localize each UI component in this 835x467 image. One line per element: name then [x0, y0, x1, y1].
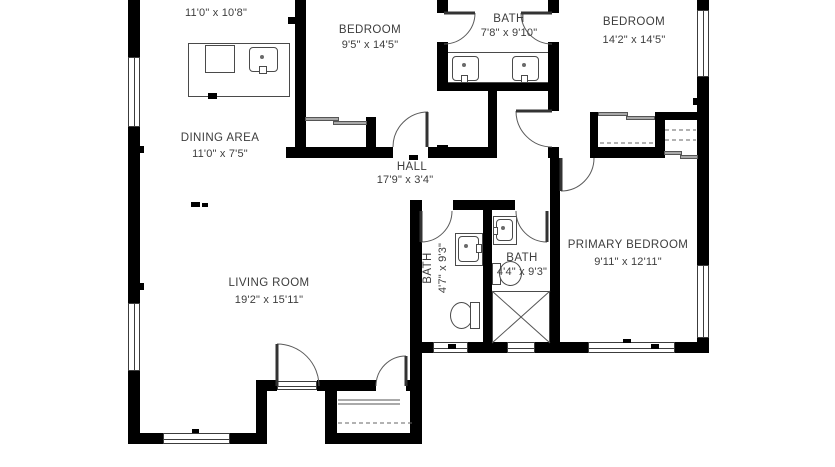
window-pane-line — [589, 348, 674, 349]
window-pane-line — [134, 304, 135, 370]
dimension-tick — [202, 203, 208, 207]
room-dims-bath-a: 4'7" x 9'3" — [437, 243, 449, 293]
window — [697, 265, 709, 338]
room-dims-hall: 17'9" x 3'4" — [377, 174, 434, 186]
door-arc — [516, 211, 547, 242]
window-pane-line — [703, 266, 704, 337]
window — [697, 10, 709, 77]
wall-segment — [548, 42, 559, 111]
wall-segment — [697, 77, 709, 265]
window — [507, 342, 535, 353]
door-arc — [393, 112, 428, 147]
dimension-tick — [623, 339, 631, 343]
vanity-faucet-icon — [521, 75, 528, 83]
wall-segment — [128, 0, 140, 57]
room-dims-bath-top: 7'8" x 9'10" — [481, 27, 538, 39]
sliding-closet-door — [333, 121, 367, 125]
room-label-primary: PRIMARY BEDROOM — [568, 239, 689, 251]
wall-segment — [453, 200, 515, 210]
wall-segment — [325, 433, 422, 444]
island-faucet-icon — [259, 66, 267, 74]
wall-segment — [483, 210, 492, 342]
wall-segment — [256, 388, 267, 444]
window-pane-line — [278, 386, 316, 387]
vanity-faucet-icon — [476, 244, 482, 253]
vanity-faucet-icon — [461, 75, 468, 83]
window — [128, 303, 140, 371]
wall-segment — [410, 200, 422, 391]
door-arc — [444, 13, 475, 44]
window — [163, 433, 230, 444]
wall-segment — [437, 0, 448, 13]
wall-segment — [697, 338, 709, 353]
wall-segment — [128, 127, 140, 303]
dimension-tick — [208, 93, 217, 99]
wall-segment — [288, 17, 296, 24]
room-label-dining: DINING AREA — [181, 132, 260, 144]
room-label-bedroom2: BEDROOM — [603, 16, 665, 28]
room-dims-dining: 11'0" x 7'5" — [192, 148, 248, 160]
wall-segment — [535, 342, 588, 353]
wall-segment — [286, 147, 393, 158]
dimension-tick — [693, 98, 697, 105]
room-dims-living: 19'2" x 15'11" — [235, 294, 303, 306]
wall-segment — [590, 147, 655, 158]
room-label-bedroom1: BEDROOM — [339, 24, 401, 36]
room-label-hall: HALL — [397, 161, 427, 173]
room-dims-primary: 9'11" x 12'11" — [594, 256, 662, 268]
window — [588, 342, 675, 353]
vanity-faucet-icon — [493, 227, 498, 235]
window — [277, 381, 317, 390]
window-pane-line — [164, 439, 229, 440]
dimension-tick — [191, 202, 200, 207]
wall-segment — [548, 147, 559, 158]
island-cooktop-icon — [205, 45, 235, 73]
wall-segment — [548, 0, 559, 13]
toilet-tank-icon — [470, 302, 480, 329]
sliding-closet-door — [626, 116, 655, 120]
room-dims-bedroom1: 9'5" x 14'5" — [342, 39, 399, 51]
dimension-tick — [140, 146, 144, 153]
door-arc — [421, 211, 452, 242]
floor-plan: KITCHEN 11'0" x 10'8" BEDROOM 9'5" x 14'… — [0, 0, 835, 467]
window — [128, 57, 140, 127]
faucet-dot — [462, 63, 466, 67]
door-arc — [561, 158, 594, 191]
window-pane-line — [134, 58, 135, 126]
door-arc — [277, 344, 319, 386]
dimension-tick — [192, 429, 199, 433]
wall-segment — [317, 380, 376, 391]
faucet-dot — [522, 63, 526, 67]
faucet-dot — [260, 55, 264, 59]
door-arc — [516, 111, 552, 147]
room-dims-kitchen: 11'0" x 10'8" — [185, 7, 247, 19]
room-label-living: LIVING ROOM — [228, 277, 309, 289]
dimension-tick — [448, 344, 456, 349]
wall-segment — [468, 342, 507, 353]
room-dims-bedroom2: 14'2" x 14'5" — [603, 34, 666, 46]
wall-segment — [428, 147, 497, 158]
room-label-bath-b: BATH — [506, 252, 537, 264]
window-pane-line — [508, 348, 534, 349]
wall-segment — [697, 0, 709, 10]
wall-segment — [256, 380, 277, 391]
wall-segment — [550, 158, 560, 352]
room-label-bath-a: BATH — [422, 252, 434, 283]
room-dims-bath-b: 4'4" x 9'3" — [497, 266, 547, 278]
faucet-dot — [501, 226, 505, 230]
dimension-tick — [492, 84, 501, 90]
wall-segment — [128, 433, 163, 444]
dimension-tick — [140, 283, 144, 290]
window-pane-line — [703, 11, 704, 76]
dimension-tick — [651, 344, 659, 349]
sliding-closet-door — [598, 112, 628, 116]
wall-segment — [295, 0, 306, 158]
wall-segment — [230, 433, 258, 444]
sliding-closet-door — [680, 155, 698, 159]
door-arc — [376, 356, 406, 386]
wall-segment — [590, 112, 598, 147]
wall-segment — [410, 342, 433, 353]
dimension-tick — [409, 155, 418, 160]
wall-segment — [665, 112, 699, 120]
vanity-sink-icon — [496, 219, 513, 241]
wall-segment — [410, 391, 422, 444]
faucet-dot — [464, 244, 468, 248]
room-label-bath-top: BATH — [493, 13, 524, 25]
shower-icon — [492, 291, 550, 343]
